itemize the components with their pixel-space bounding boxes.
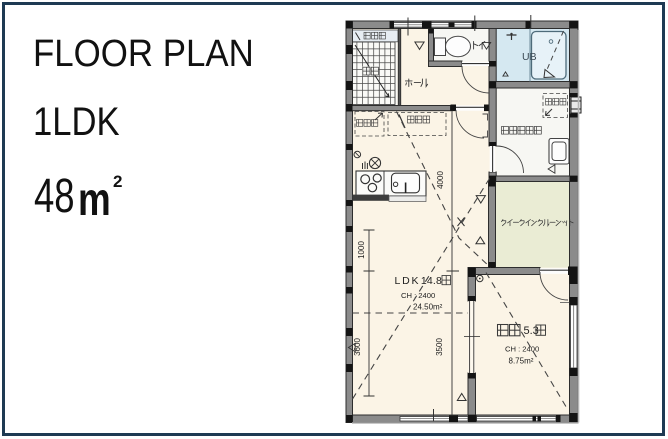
svg-text:CH : 2400: CH : 2400 [505,345,539,354]
svg-text:24.50m²: 24.50m² [413,303,443,312]
svg-text:3500: 3500 [435,338,444,356]
svg-text:8.75m²: 8.75m² [509,357,534,366]
svg-text:LDK14.8: LDK14.8 [395,275,443,287]
svg-text:CH : 2400: CH : 2400 [401,291,435,300]
svg-text:UB: UB [522,51,537,63]
svg-text:4000: 4000 [436,171,445,189]
svg-text:3600: 3600 [353,338,362,356]
svg-text:1000: 1000 [357,241,366,259]
